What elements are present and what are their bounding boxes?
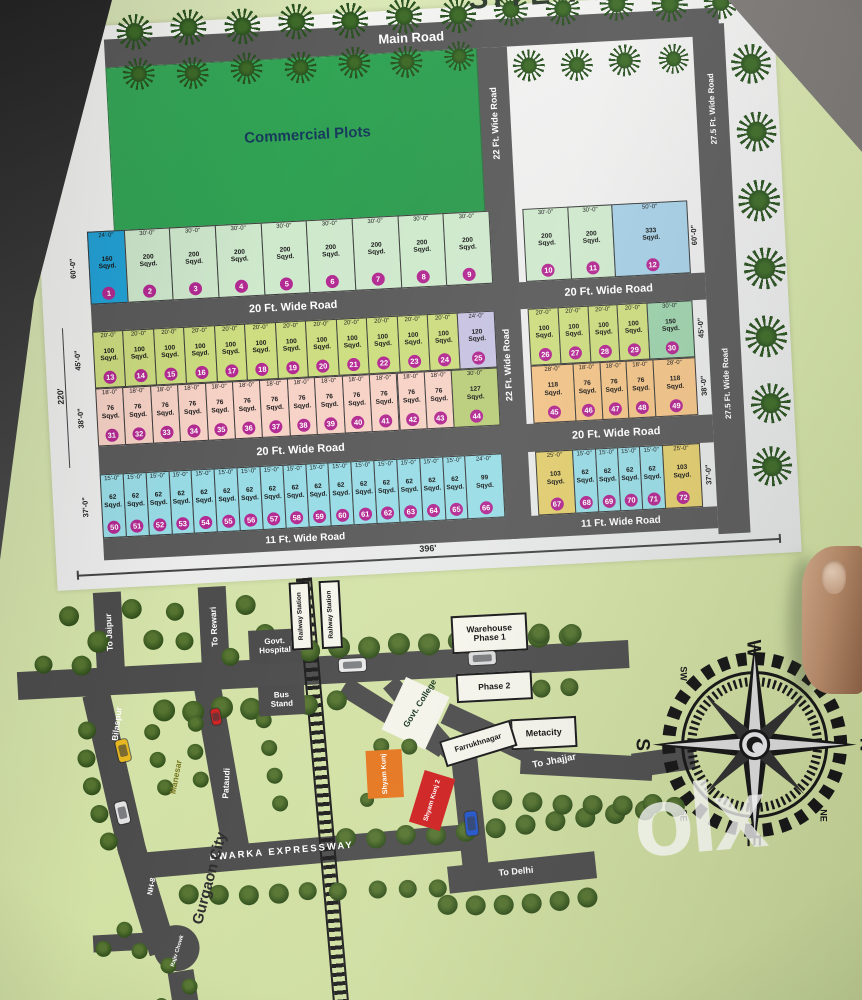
- plot-number-badge: 22: [377, 356, 391, 370]
- plot-67: 25'-0"103Sqyd.67: [535, 450, 577, 516]
- tree-icon: [235, 595, 256, 616]
- plot-area-label: 76Sqyd.: [238, 388, 257, 422]
- plot-number-badge: 16: [195, 366, 209, 380]
- plot-area-label: 100Sqyd.: [535, 316, 554, 349]
- plot-number-badge: 37: [269, 420, 283, 434]
- tree-icon: [532, 679, 551, 698]
- plot-number-badge: 34: [187, 424, 201, 438]
- plot-area-label: 100Sqyd.: [404, 322, 423, 355]
- plot-34: 18'-0"76Sqyd.34: [177, 383, 208, 442]
- plot-number-badge: 40: [351, 416, 365, 430]
- plot-number-badge: 23: [408, 355, 422, 369]
- plot-number-badge: 61: [358, 507, 372, 521]
- plot-number-badge: 17: [225, 364, 239, 378]
- plot-number-badge: 33: [160, 426, 174, 440]
- compass-s: S: [635, 738, 653, 751]
- tree-icon: [99, 832, 118, 851]
- plot-26: 20'-0"100Sqyd.26: [528, 307, 562, 366]
- plot-area-label: 100Sqyd.: [251, 330, 270, 363]
- plot-number-badge: 50: [107, 520, 121, 534]
- plot-area-label: 100Sqyd.: [594, 312, 613, 345]
- dim-tick-right: [779, 534, 781, 543]
- plot-24: 20'-0"100Sqyd.24: [427, 312, 461, 371]
- plot-2: 30'-0"200Sqyd.2: [123, 227, 173, 302]
- tree-icon: [238, 885, 259, 906]
- plot-number-badge: 13: [103, 370, 117, 384]
- plot-area-label: 76Sqyd.: [429, 378, 448, 412]
- plot-number-badge: 36: [242, 421, 256, 435]
- olx-watermark: olx: [629, 756, 768, 880]
- railway-station-box-2: Railway Station: [319, 580, 344, 649]
- plot-22: 20'-0"100Sqyd.22: [366, 316, 400, 375]
- shyam-kunj-2-label: Shyam Kunj 2: [423, 779, 442, 822]
- plot-number-badge: 24: [438, 353, 452, 367]
- dim-right-60: 60'-0": [689, 225, 699, 246]
- plot-number-badge: 10: [542, 263, 556, 277]
- govt-hospital-label: Govt. Hospital: [254, 637, 295, 657]
- manesar-label: Manesar: [167, 759, 183, 795]
- plot-area-label: 100Sqyd.: [373, 324, 392, 357]
- plot-number-badge: 28: [598, 345, 612, 359]
- plot-16: 20'-0"100Sqyd.16: [183, 325, 217, 384]
- plot-17: 20'-0"100Sqyd.17: [214, 324, 248, 383]
- tree-icon: [131, 943, 148, 960]
- plot-number-badge: 6: [326, 275, 340, 289]
- plot-7: 30'-0"200Sqyd.7: [352, 215, 402, 290]
- tree-icon: [326, 690, 347, 711]
- plot-39: 18'-0"76Sqyd.39: [314, 376, 345, 435]
- plot-area-label: 76Sqyd.: [375, 381, 394, 415]
- railway-station-label-2: Railway Station: [325, 590, 335, 638]
- dim-bottom-396: 396': [419, 543, 437, 554]
- plot-number-badge: 66: [479, 501, 493, 515]
- plot-number-badge: 5: [280, 277, 294, 291]
- plot-number-badge: 41: [379, 414, 393, 428]
- tree-icon: [612, 795, 633, 816]
- plot-area-label: 76Sqyd.: [292, 385, 311, 419]
- dim-left-60: 60'-0": [68, 258, 78, 279]
- plot-area-label: 99Sqyd.: [475, 462, 495, 502]
- plot-number-badge: 48: [635, 401, 649, 415]
- plot-number-badge: 56: [244, 513, 258, 527]
- tree-icon: [90, 804, 109, 823]
- plot-number-badge: 8: [417, 270, 431, 284]
- plot-number-badge: 59: [313, 510, 327, 524]
- plot-number-badge: 3: [189, 282, 203, 296]
- shyam-kunj-2-box: Shyam Kunj 2: [409, 770, 455, 831]
- tree-icon: [560, 678, 579, 697]
- plot-12: 50'-0"333Sqyd.12: [612, 200, 691, 277]
- plot-number-badge: 20: [316, 359, 330, 373]
- plot-number-badge: 57: [267, 512, 281, 526]
- plot-number-badge: 26: [539, 348, 553, 362]
- plot-number-badge: 71: [647, 492, 661, 506]
- plot-number-badge: 54: [199, 516, 213, 530]
- plot-area-label: 62Sqyd.: [103, 481, 123, 521]
- tree-icon: [153, 699, 176, 722]
- bus-stand-box: Bus Stand: [258, 684, 306, 716]
- plot-42: 18'-0"76Sqyd.42: [396, 371, 427, 430]
- plot-area-label: 200Sqyd.: [275, 229, 295, 278]
- tree-icon: [515, 814, 536, 835]
- plot-number-badge: 14: [134, 369, 148, 383]
- plot-area-label: 76Sqyd.: [578, 370, 597, 404]
- plot-number-badge: 70: [625, 493, 639, 507]
- fingernail: [822, 560, 846, 594]
- tree-icon: [266, 767, 283, 784]
- plot-area-label: 200Sqyd.: [581, 213, 601, 262]
- plot-number-badge: 30: [665, 341, 679, 355]
- plot-number-badge: 38: [297, 418, 311, 432]
- plot-6: 30'-0"200Sqyd.6: [306, 218, 356, 293]
- plot-area-label: 100Sqyd.: [434, 321, 453, 354]
- plot-area-label: 62Sqyd.: [126, 480, 146, 520]
- plot-number-badge: 51: [130, 519, 144, 533]
- plot-number-badge: 35: [214, 423, 228, 437]
- plot-number-badge: 46: [582, 403, 596, 417]
- finger: [802, 546, 862, 694]
- plot-30: 30'-0"150Sqyd.30: [647, 300, 696, 359]
- plot-area-label: 62Sqyd.: [286, 472, 306, 512]
- plot-area-label: 100Sqyd.: [312, 327, 331, 360]
- palm-tree-icon: [510, 47, 547, 84]
- plot-area-label: 76Sqyd.: [402, 380, 421, 414]
- pataudi-label: Pataudi: [220, 768, 232, 799]
- plot-area-label: 200Sqyd.: [138, 236, 158, 285]
- plot-number-badge: 65: [450, 503, 464, 517]
- plot-35: 18'-0"76Sqyd.35: [205, 381, 236, 440]
- plot-area-label: 76Sqyd.: [128, 394, 147, 428]
- palm-tree-icon: [743, 313, 789, 359]
- plot-area-label: 160Sqyd.: [97, 238, 117, 287]
- plot-48: 18'-0"76Sqyd.48: [626, 359, 657, 418]
- plot-area-label: 127Sqyd.: [466, 376, 485, 410]
- plot-area-label: 62Sqyd.: [149, 479, 169, 519]
- plot-8: 30'-0"200Sqyd.8: [397, 213, 447, 288]
- plot-3: 30'-0"200Sqyd.3: [169, 225, 219, 300]
- palm-tree-icon: [653, 38, 695, 80]
- plot-area-label: 200Sqyd.: [184, 234, 204, 283]
- plot-number-badge: 7: [371, 272, 385, 286]
- tree-icon: [175, 632, 194, 651]
- dim-left-38: 38'-0": [76, 408, 86, 429]
- tree-icon: [261, 740, 278, 757]
- plot-36: 18'-0"76Sqyd.36: [232, 380, 263, 439]
- plot-number-badge: 68: [580, 496, 594, 510]
- railway-station-label-1: Railway Station: [296, 592, 306, 640]
- warehouse-phase1-label: Warehouse Phase 1: [461, 622, 518, 644]
- plot-45: 28'-0"118Sqyd.45: [531, 364, 577, 424]
- plot-66: 24'-0"99Sqyd.66: [465, 453, 506, 519]
- plot-area-label: 200Sqyd.: [321, 227, 341, 276]
- plot-number-badge: 9: [462, 268, 476, 282]
- plot-area-label: 62Sqyd.: [172, 478, 192, 518]
- compass-sw: SW: [679, 666, 689, 681]
- plot-area-label: 120Sqyd.: [467, 319, 486, 352]
- plot-area-label: 62Sqyd.: [308, 471, 328, 511]
- palm-tree-icon: [743, 375, 799, 431]
- plot-area-label: 100Sqyd.: [130, 337, 149, 370]
- tree-icon: [272, 795, 289, 812]
- tree-icon: [149, 751, 166, 768]
- dim-right-45: 45'-0": [696, 317, 706, 338]
- to-jaipur-label: To Jaipur: [103, 613, 115, 651]
- tree-icon: [82, 777, 101, 796]
- plot-number-badge: 32: [132, 427, 146, 441]
- shyam-kunj-box: Shyam Kunj: [365, 749, 403, 799]
- plot-27: 20'-0"100Sqyd.27: [557, 306, 591, 365]
- compass-w: W: [743, 640, 764, 658]
- tree-icon: [561, 623, 582, 644]
- plot-area-label: 62Sqyd.: [354, 468, 374, 508]
- plot-31: 18'-0"76Sqyd.31: [95, 387, 126, 446]
- plot-number-badge: 15: [164, 367, 178, 381]
- tree-icon: [582, 795, 603, 816]
- plot-9: 30'-0"200Sqyd.9: [443, 211, 493, 286]
- phase2-label: Phase 2: [478, 681, 511, 692]
- plot-number-badge: 52: [153, 518, 167, 532]
- plot-area-label: 200Sqyd.: [458, 219, 478, 268]
- photo-canvas: Commercial Plots Main Road 22 Ft. Wide R…: [0, 0, 862, 1000]
- plot-area-label: 100Sqyd.: [282, 329, 301, 362]
- plot-area-label: 62Sqyd.: [422, 465, 442, 505]
- plot-area-label: 333Sqyd.: [641, 210, 661, 259]
- plot-area-label: 200Sqyd.: [230, 231, 250, 280]
- site-plan-panel: Commercial Plots Main Road 22 Ft. Wide R…: [28, 0, 801, 591]
- plot-29: 20'-0"100Sqyd.29: [617, 303, 651, 362]
- plot-area-label: 100Sqyd.: [99, 338, 118, 371]
- plot-49: 28'-0"118Sqyd.49: [653, 357, 699, 417]
- palm-tree-icon: [607, 43, 642, 78]
- plot-number-badge: 19: [286, 361, 300, 375]
- plot-38: 18'-0"76Sqyd.38: [287, 377, 318, 436]
- plot-area-label: 62Sqyd.: [263, 473, 283, 513]
- plot-area-label: 62Sqyd.: [331, 469, 351, 509]
- tree-icon: [165, 602, 184, 621]
- tree-icon: [549, 890, 570, 911]
- plot-number-badge: 72: [677, 491, 691, 505]
- palm-tree-icon: [730, 43, 771, 84]
- plot-area-label: 62Sqyd.: [598, 455, 618, 495]
- plot-area-label: 76Sqyd.: [210, 390, 229, 424]
- tree-icon: [121, 598, 142, 619]
- plot-number-badge: 21: [347, 358, 361, 372]
- plot-number-badge: 45: [548, 405, 562, 419]
- palm-tree-icon: [554, 43, 599, 88]
- plot-area-label: 62Sqyd.: [194, 477, 214, 517]
- plot-area-label: 76Sqyd.: [347, 382, 366, 416]
- plot-number-badge: 12: [646, 258, 660, 272]
- dim-left-37: 37'-0": [80, 497, 90, 518]
- bus-stand-label: Bus Stand: [267, 691, 296, 710]
- tree-icon: [59, 606, 80, 627]
- plot-number-badge: 43: [433, 411, 447, 425]
- plot-44: 30'-0"127Sqyd.44: [451, 368, 501, 428]
- farrukhnagar-label: Farrukhnagar: [454, 733, 503, 755]
- car-icon: [464, 811, 478, 836]
- plot-23: 20'-0"100Sqyd.23: [396, 314, 430, 373]
- plot-number-badge: 27: [568, 346, 582, 360]
- car-icon: [339, 658, 367, 672]
- plot-72: 25'-0"103Sqyd.72: [662, 443, 704, 509]
- to-rewari-label: To Rewari: [208, 606, 220, 646]
- plot-number-badge: 4: [234, 279, 248, 293]
- plot-13: 20'-0"100Sqyd.13: [92, 330, 126, 389]
- plot-number-badge: 42: [406, 413, 420, 427]
- plot-number-badge: 69: [602, 495, 616, 509]
- plot-number-badge: 58: [290, 511, 304, 525]
- plot-area-label: 103Sqyd.: [672, 452, 692, 492]
- plot-number-badge: 63: [404, 505, 418, 519]
- plot-area-label: 200Sqyd.: [412, 222, 432, 271]
- plot-area-label: 76Sqyd.: [265, 387, 284, 421]
- plot-43: 18'-0"76Sqyd.43: [424, 370, 455, 429]
- tree-icon: [485, 818, 506, 839]
- tree-icon: [552, 794, 573, 815]
- tree-icon: [522, 792, 543, 813]
- tree-icon: [577, 887, 598, 908]
- plot-area-label: 100Sqyd.: [191, 334, 210, 367]
- plot-33: 18'-0"76Sqyd.33: [150, 384, 181, 443]
- plot-number-badge: 60: [336, 508, 350, 522]
- plot-area-label: 76Sqyd.: [101, 395, 120, 429]
- plot-area-label: 103Sqyd.: [546, 458, 566, 498]
- phase2-box: Phase 2: [456, 670, 533, 703]
- tree-icon: [398, 879, 417, 898]
- tree-icon: [95, 941, 112, 958]
- dim-left-45: 45'-0": [73, 350, 83, 371]
- plot-area-label: 62Sqyd.: [445, 463, 465, 503]
- plot-14: 20'-0"100Sqyd.14: [123, 328, 157, 387]
- plot-number-badge: 29: [628, 343, 642, 357]
- tree-icon: [144, 724, 161, 741]
- tree-icon: [437, 894, 458, 915]
- tree-icon: [465, 895, 486, 916]
- metacity-label: Metacity: [526, 727, 562, 739]
- plot-area-label: 62Sqyd.: [620, 454, 640, 494]
- tree-icon: [328, 882, 347, 901]
- palm-tree-icon: [735, 239, 794, 298]
- plot-area-label: 200Sqyd.: [537, 215, 557, 264]
- site-plan-poster: Commercial Plots Main Road 22 Ft. Wide R…: [0, 0, 862, 1000]
- tree-icon: [401, 738, 418, 755]
- location-map: Govt. Hospital Bus Stand Railway Station…: [13, 551, 862, 1000]
- dim-tick-left: [77, 571, 79, 580]
- plot-46: 18'-0"76Sqyd.46: [572, 362, 603, 421]
- plot-25: 24'-0"120Sqyd.25: [457, 311, 497, 370]
- plot-41: 18'-0"76Sqyd.41: [369, 373, 400, 432]
- plot-number-badge: 25: [471, 351, 485, 365]
- plot-15: 20'-0"100Sqyd.15: [153, 327, 187, 386]
- plot-area-label: 100Sqyd.: [624, 311, 643, 344]
- plot-4: 30'-0"200Sqyd.4: [215, 223, 265, 298]
- plot-number-badge: 47: [609, 402, 623, 416]
- plot-area-label: 62Sqyd.: [400, 466, 420, 506]
- plot-area-label: 76Sqyd.: [631, 368, 650, 402]
- plot-area-label: 76Sqyd.: [320, 384, 339, 418]
- tree-icon: [268, 883, 289, 904]
- tree-icon: [521, 893, 542, 914]
- dim-right-38: 38'-0": [699, 375, 709, 396]
- tree-icon: [492, 789, 513, 810]
- plot-number-badge: 49: [670, 399, 684, 413]
- palm-tree-icon: [737, 179, 780, 222]
- palm-tree-icon: [749, 443, 795, 489]
- plot-area-label: 100Sqyd.: [160, 335, 179, 368]
- plot-area-label: 100Sqyd.: [564, 314, 583, 347]
- plot-1: 24'-0"160Sqyd.1: [87, 230, 128, 305]
- palm-tree-icon: [728, 103, 785, 160]
- plot-47: 18'-0"76Sqyd.47: [599, 361, 630, 420]
- plot-number-badge: 39: [324, 417, 338, 431]
- compass-n: N: [856, 738, 862, 752]
- plot-area-label: 100Sqyd.: [221, 332, 240, 365]
- plot-number-badge: 67: [550, 497, 564, 511]
- plot-area-label: 76Sqyd.: [183, 391, 202, 425]
- plot-5: 30'-0"200Sqyd.5: [260, 220, 310, 295]
- plot-number-badge: 1: [102, 286, 116, 300]
- shyam-kunj-label: Shyam Kunj: [380, 754, 389, 795]
- plot-area-label: 62Sqyd.: [377, 467, 397, 507]
- plot-40: 18'-0"76Sqyd.40: [341, 374, 372, 433]
- plot-28: 20'-0"100Sqyd.28: [587, 304, 621, 363]
- tree-icon: [192, 771, 209, 788]
- plot-number-badge: 2: [143, 284, 157, 298]
- plot-number-badge: 53: [176, 517, 190, 531]
- tree-icon: [368, 880, 387, 899]
- plot-number-badge: 44: [470, 409, 484, 423]
- plot-number-badge: 62: [381, 506, 395, 520]
- tree-icon: [143, 629, 164, 650]
- plot-area-label: 200Sqyd.: [366, 224, 386, 273]
- plot-number-badge: 31: [105, 428, 119, 442]
- plot-area-label: 100Sqyd.: [343, 326, 362, 359]
- plot-area-label: 62Sqyd.: [642, 453, 662, 493]
- plot-18: 20'-0"100Sqyd.18: [244, 322, 278, 381]
- tree-icon: [298, 882, 317, 901]
- tree-icon: [187, 743, 204, 760]
- plot-20: 20'-0"100Sqyd.20: [305, 319, 339, 378]
- plot-32: 18'-0"76Sqyd.32: [123, 386, 154, 445]
- plot-11: 30'-0"200Sqyd.11: [567, 204, 616, 279]
- plot-area-label: 62Sqyd.: [217, 475, 237, 515]
- plot-number-badge: 64: [427, 504, 441, 518]
- plot-area-label: 76Sqyd.: [604, 369, 623, 403]
- plot-area-label: 62Sqyd.: [575, 457, 595, 497]
- plot-area-label: 150Sqyd.: [661, 309, 680, 342]
- compass-ne: NE: [819, 809, 829, 822]
- plot-number-badge: 55: [222, 514, 236, 528]
- dim-right-37: 37'-0": [703, 464, 713, 485]
- tree-icon: [493, 894, 514, 915]
- plot-area-label: 76Sqyd.: [156, 393, 175, 427]
- plot-37: 18'-0"76Sqyd.37: [259, 378, 290, 437]
- plot-area-label: 118Sqyd.: [666, 366, 685, 400]
- plot-area-label: 62Sqyd.: [240, 474, 260, 514]
- warehouse-phase1-box: Warehouse Phase 1: [451, 612, 529, 654]
- plot-21: 20'-0"100Sqyd.21: [335, 317, 369, 376]
- railway-station-box-1: Railway Station: [289, 582, 314, 651]
- plot-area-label: 118Sqyd.: [543, 372, 562, 406]
- plot-number-badge: 18: [256, 362, 270, 376]
- plot-19: 20'-0"100Sqyd.19: [275, 320, 309, 379]
- tree-icon: [77, 749, 96, 768]
- plot-10: 30'-0"200Sqyd.10: [522, 207, 571, 282]
- plot-number-badge: 11: [586, 261, 600, 275]
- car-icon: [468, 651, 496, 665]
- metacity-box: Metacity: [510, 716, 578, 750]
